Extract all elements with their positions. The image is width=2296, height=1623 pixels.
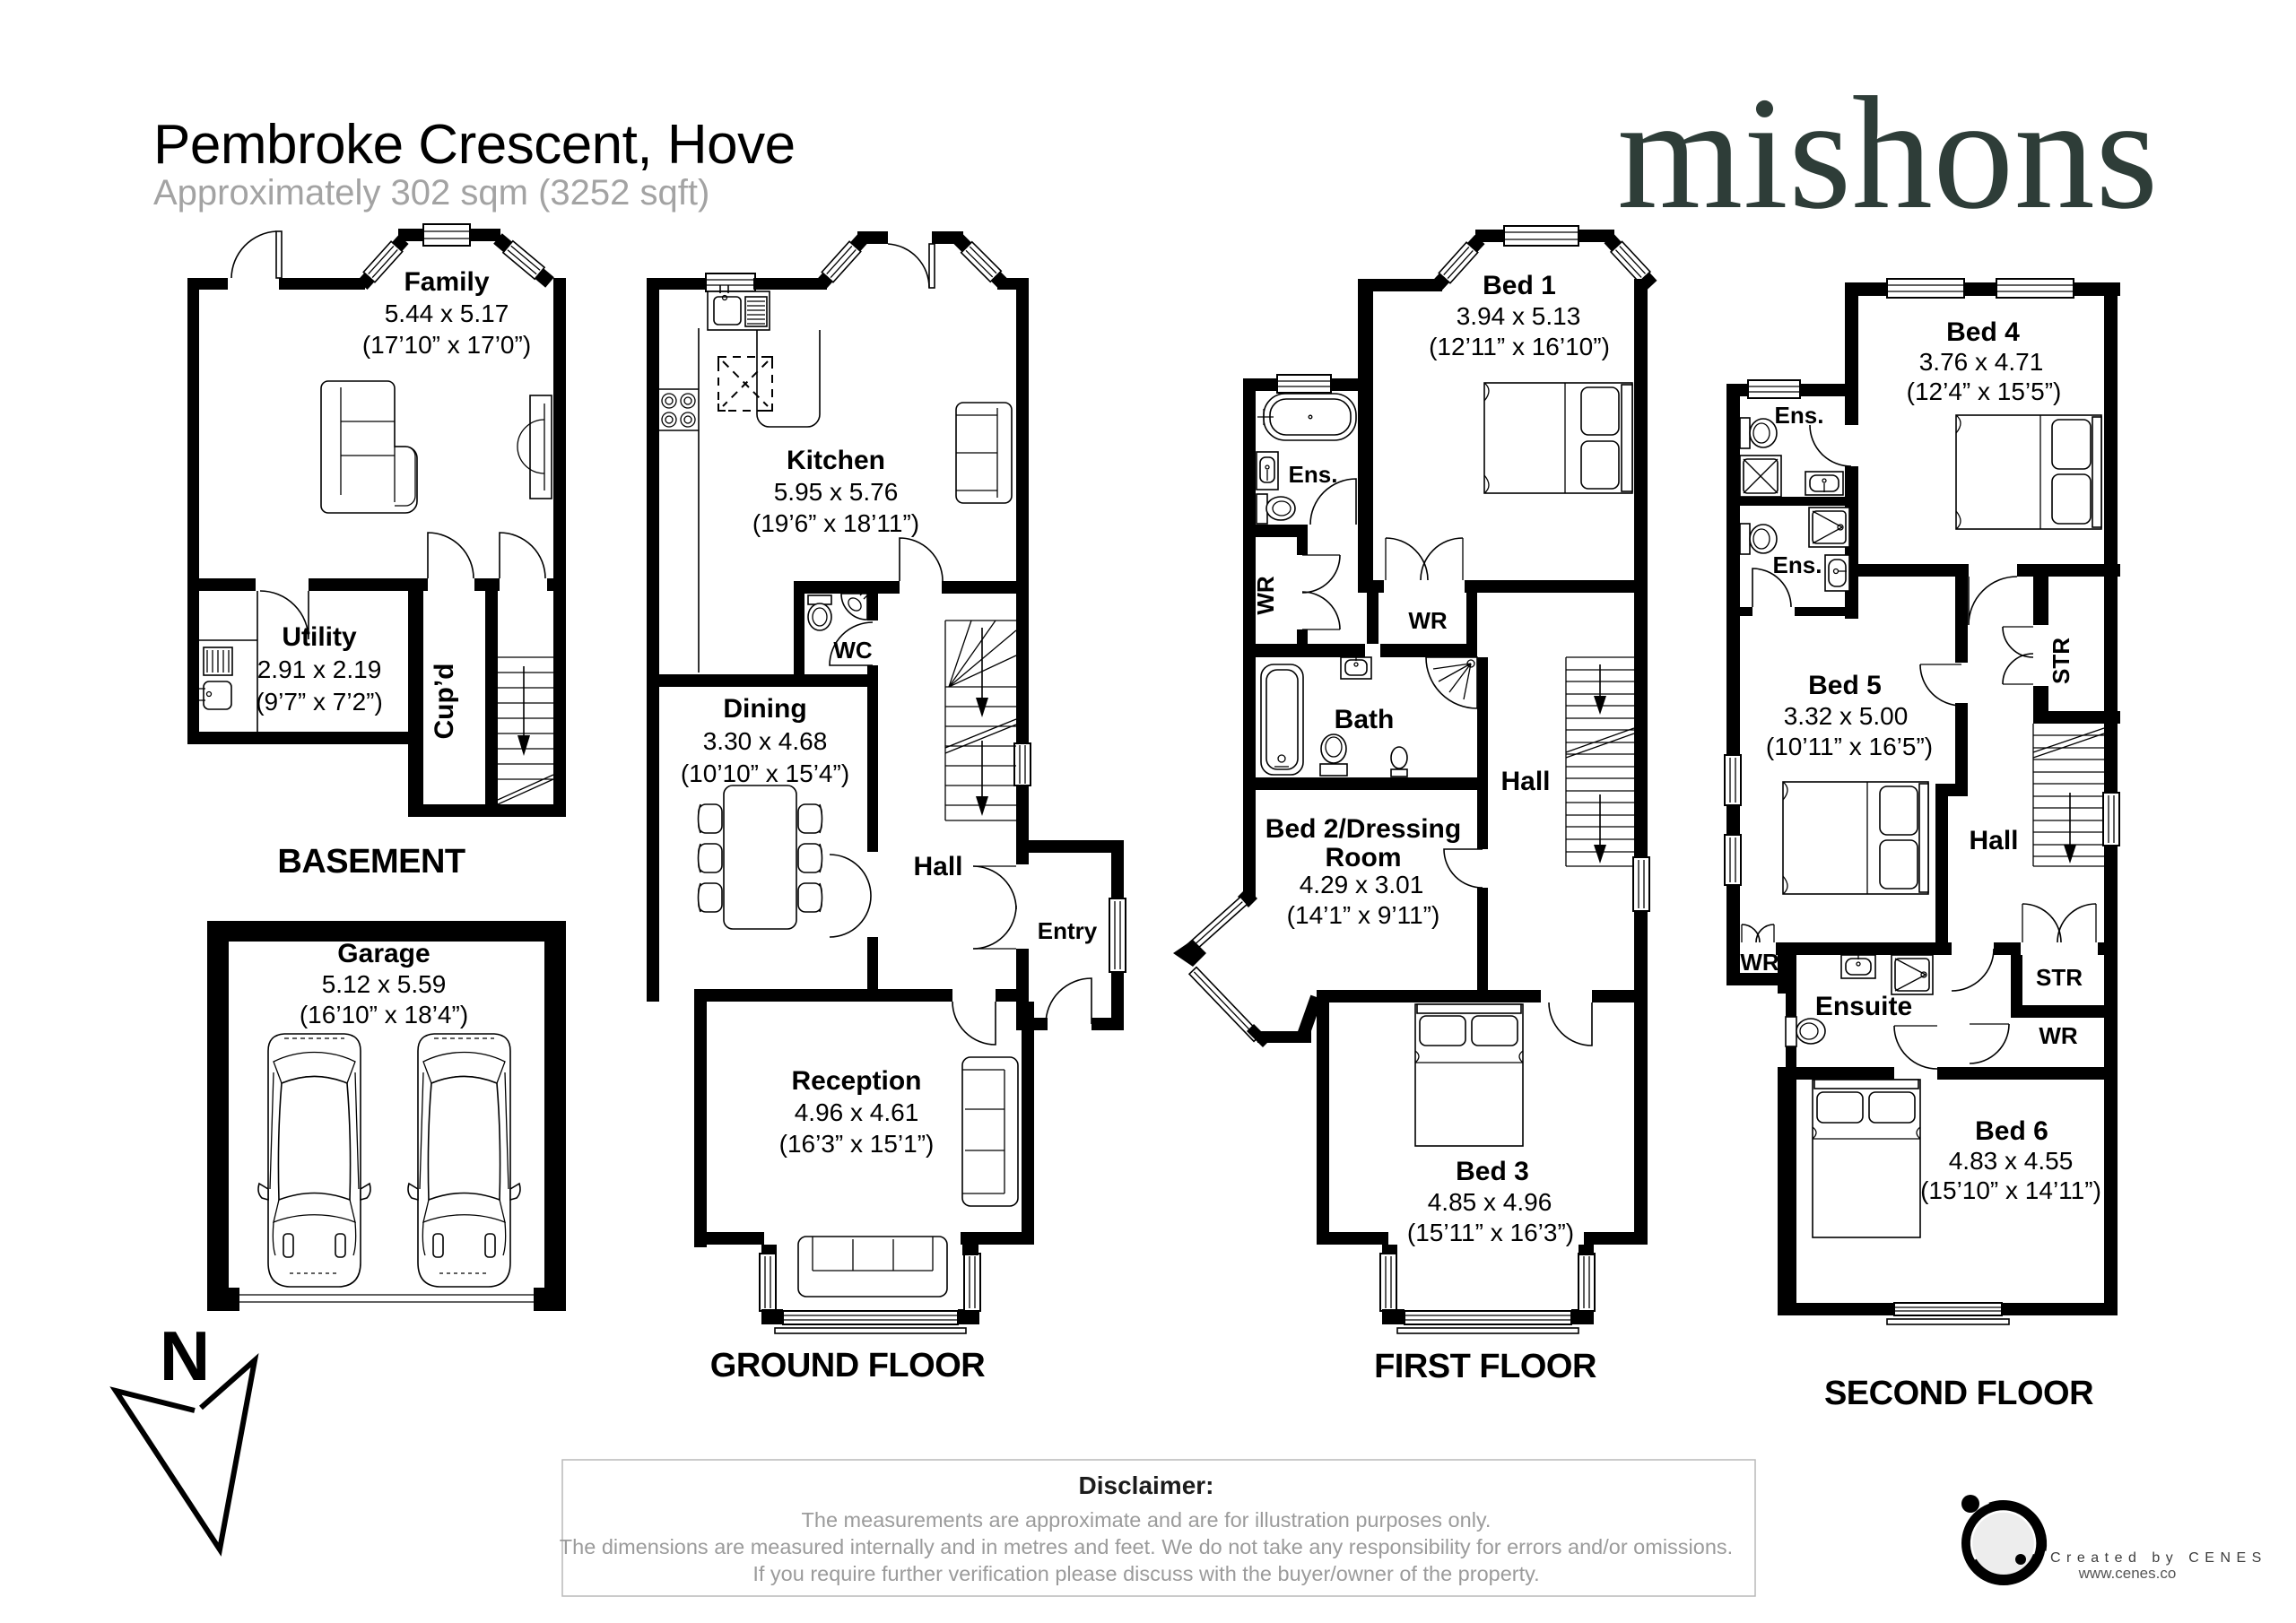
svg-text:4.83 x 4.55: 4.83 x 4.55 [1949,1147,2074,1175]
svg-text:Utility: Utility [282,622,357,652]
svg-text:(15’11” x 16’3”): (15’11” x 16’3”) [1407,1219,1574,1246]
svg-text:Hall: Hall [1969,826,2018,855]
svg-text:3.76 x 4.71: 3.76 x 4.71 [1919,348,2044,376]
svg-text:Bed 5: Bed 5 [1808,671,1882,700]
svg-text:N: N [160,1316,210,1395]
svg-text:5.12 x 5.59: 5.12 x 5.59 [322,970,447,998]
svg-text:(12’4” x 15’5”): (12’4” x 15’5”) [1907,378,2062,405]
svg-text:WR: WR [1740,949,1779,976]
svg-text:Bed 4: Bed 4 [1946,317,2020,347]
svg-text:(10’11” x 16’5”): (10’11” x 16’5”) [1766,733,1933,760]
svg-text:Ens.: Ens. [1289,461,1338,488]
svg-text:(16’10” x 18’4”): (16’10” x 18’4”) [300,1001,468,1028]
svg-text:(16’3” x 15’1”): (16’3” x 15’1”) [779,1130,935,1158]
svg-text:STR: STR [2048,638,2074,684]
svg-text:(17’10” x 17’0”): (17’10” x 17’0”) [362,331,531,359]
svg-text:WR: WR [2039,1022,2078,1049]
svg-text:5.44 x 5.17: 5.44 x 5.17 [385,299,509,327]
svg-text:WR: WR [1252,576,1279,615]
svg-text:Hall: Hall [913,852,962,881]
svg-text:3.94 x 5.13: 3.94 x 5.13 [1457,302,1581,330]
svg-text:Hall: Hall [1500,767,1550,796]
svg-text:Created by CENES: Created by CENES [2050,1550,2267,1566]
svg-text:Dining: Dining [723,694,806,724]
svg-text:(14’1” x 9’11”): (14’1” x 9’11”) [1287,901,1440,929]
svg-text:(10’10” x 15’4”): (10’10” x 15’4”) [681,759,849,787]
svg-text:Ens.: Ens. [1773,551,1822,578]
svg-text:Bed 1: Bed 1 [1483,271,1556,300]
svg-text:(15’10” x 14’11”): (15’10” x 14’11”) [1920,1176,2101,1204]
svg-text:3.32 x 5.00: 3.32 x 5.00 [1784,702,1909,730]
svg-text:STR: STR [2036,964,2083,991]
svg-text:4.96 x 4.61: 4.96 x 4.61 [795,1098,919,1126]
svg-text:(9’7” x 7’2”): (9’7” x 7’2”) [256,688,383,716]
svg-text:Cup’d: Cup’d [430,664,459,740]
svg-text:Kitchen: Kitchen [787,446,885,475]
svg-text:GROUND FLOOR: GROUND FLOOR [710,1347,985,1384]
svg-text:Garage: Garage [337,939,430,968]
svg-text:The measurements are approxima: The measurements are approximate and are… [802,1508,1492,1532]
svg-text:Pembroke Crescent, Hove: Pembroke Crescent, Hove [153,114,796,176]
svg-text:Entry: Entry [1038,917,1098,944]
svg-text:4.85 x 4.96: 4.85 x 4.96 [1428,1188,1552,1216]
svg-text:Family: Family [404,267,489,297]
svg-text:Bath: Bath [1335,705,1395,734]
svg-text:SECOND FLOOR: SECOND FLOOR [1824,1375,2093,1412]
svg-text:www.cenes.co: www.cenes.co [2078,1565,2177,1582]
svg-text:FIRST FLOOR: FIRST FLOOR [1374,1348,1596,1385]
svg-text:Bed 6: Bed 6 [1975,1116,2048,1146]
svg-text:4.29 x 3.01: 4.29 x 3.01 [1300,871,1424,898]
svg-text:mishons: mishons [1617,64,2159,242]
svg-text:(12’11” x 16’10”): (12’11” x 16’10”) [1429,333,1610,360]
svg-text:Approximately 302 sqm (3252 sq: Approximately 302 sqm (3252 sqft) [153,173,709,213]
svg-text:If you require further verific: If you require further verification plea… [752,1562,1539,1585]
svg-text:Ens.: Ens. [1775,402,1824,429]
svg-text:3.30 x 4.68: 3.30 x 4.68 [703,727,828,755]
svg-text:(19’6” x 18’11”): (19’6” x 18’11”) [752,509,919,537]
svg-text:The dimensions are measured in: The dimensions are measured internally a… [560,1535,1733,1558]
svg-text:Bed 2/Dressing: Bed 2/Dressing [1265,814,1461,844]
svg-text:Ensuite: Ensuite [1815,992,1912,1021]
svg-text:Disclaimer:: Disclaimer: [1079,1471,1214,1499]
svg-text:BASEMENT: BASEMENT [277,843,465,881]
svg-text:5.95 x 5.76: 5.95 x 5.76 [774,478,899,506]
svg-text:WR: WR [1408,607,1448,634]
svg-text:WC: WC [833,637,873,664]
svg-text:2.91 x 2.19: 2.91 x 2.19 [257,655,382,683]
svg-text:Bed 3: Bed 3 [1456,1157,1529,1186]
svg-text:Room: Room [1326,843,1402,872]
svg-text:Reception: Reception [791,1066,921,1096]
